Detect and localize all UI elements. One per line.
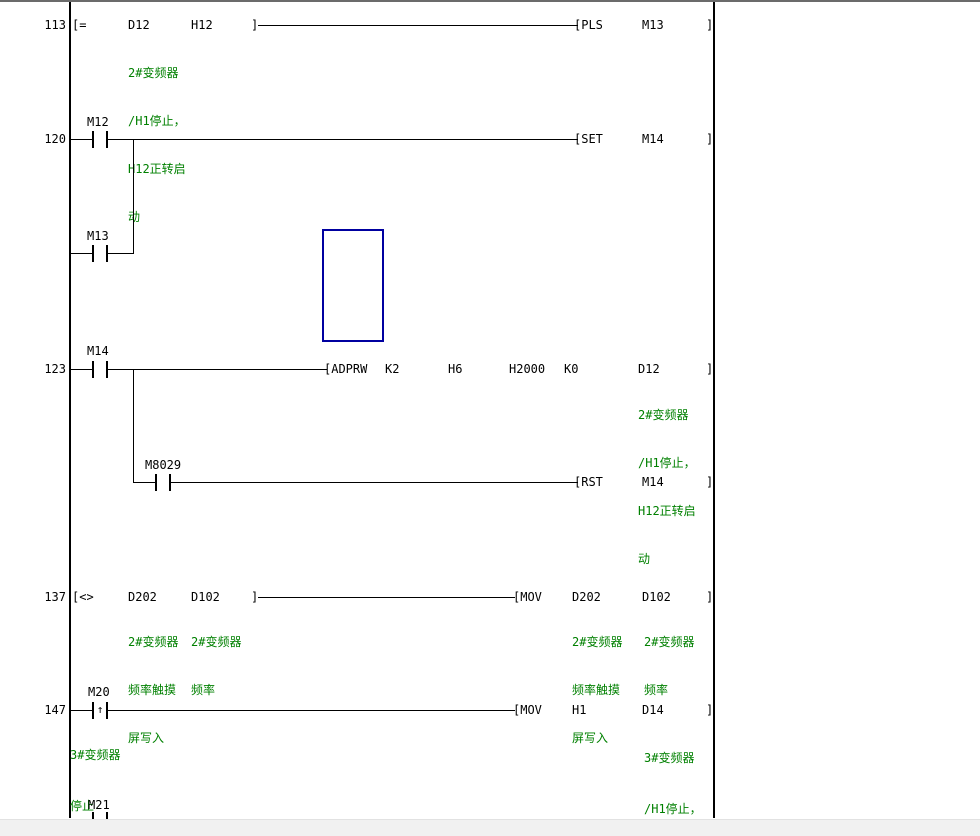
set-op[interactable]: [SET — [574, 132, 603, 146]
step-number-113: 113 — [36, 18, 66, 32]
wire-h — [70, 369, 327, 370]
compare-close-137: ] — [251, 590, 258, 604]
adprw-p1[interactable]: K2 — [385, 362, 399, 376]
contact-m14[interactable] — [92, 361, 108, 378]
set-close: ] — [706, 132, 713, 146]
contact-label-m8029: M8029 — [145, 458, 181, 472]
contact-m21-partial[interactable] — [106, 812, 108, 819]
wire-h — [258, 597, 515, 598]
contact-m13[interactable] — [92, 245, 108, 262]
contact-m8029[interactable] — [155, 474, 171, 491]
comment-line: 频率触摸 — [572, 682, 622, 698]
comment-line: H12正转启 — [128, 161, 186, 177]
comment-line: 屏写入 — [572, 730, 622, 746]
pls-close: ] — [706, 18, 713, 32]
comment-line: H12正转启 — [638, 503, 696, 519]
device-comment-d202: 2#变频器 频率触摸 屏写入 — [128, 602, 178, 778]
mov-src-147[interactable]: H1 — [572, 703, 586, 717]
rst-op[interactable]: [RST — [574, 475, 603, 489]
contact-label-m14: M14 — [87, 344, 109, 358]
comment-line: 3#变频器 — [70, 747, 120, 764]
device-comment-d12: 2#变频器 /H1停止， H12正转启 动 — [128, 33, 186, 257]
wire-h — [70, 710, 515, 711]
adprw-close: ] — [706, 362, 713, 376]
device-comment-d14: 3#变频器 /H1停止， H12正转启 动 — [644, 716, 702, 836]
device-comment-d202: 2#变频器 频率触摸 屏写入 — [572, 602, 622, 778]
branch-wire-v — [133, 139, 134, 254]
comment-line: 2#变频器 — [128, 65, 186, 81]
wire-h — [70, 139, 578, 140]
comment-line: 3#变频器 — [644, 750, 702, 767]
comment-line: 动 — [638, 551, 696, 567]
contact-label-m12: M12 — [87, 115, 109, 129]
contact-m12[interactable] — [92, 131, 108, 148]
comment-line: 频率 — [644, 682, 694, 698]
contact-label-m13: M13 — [87, 229, 109, 243]
step-number-120: 120 — [36, 132, 66, 146]
contact-label-m20: M20 — [88, 685, 110, 699]
adprw-p2[interactable]: H6 — [448, 362, 462, 376]
wire-h — [133, 482, 578, 483]
comment-line: 2#变频器 — [128, 634, 178, 650]
mov-op-147[interactable]: [MOV — [513, 703, 542, 717]
comment-line: /H1停止， — [638, 455, 696, 471]
comment-line: 屏写入 — [128, 730, 178, 746]
set-dev[interactable]: M14 — [642, 132, 664, 146]
ladder-editor-canvas: 113 [= D12 H12 ] 2#变频器 /H1停止， H12正转启 动 [… — [0, 0, 980, 836]
selection-cursor — [322, 229, 384, 342]
compare-op-113[interactable]: [= — [72, 18, 86, 32]
comment-line: 动 — [128, 209, 186, 225]
compare-s1-113[interactable]: D12 — [128, 18, 150, 32]
right-power-rail — [713, 2, 715, 818]
contact-label-m21: M21 — [88, 798, 110, 812]
adprw-p3[interactable]: H2000 — [509, 362, 545, 376]
top-border-line — [0, 0, 980, 2]
branch-wire-v — [133, 369, 134, 483]
adprw-p5[interactable]: D12 — [638, 362, 660, 376]
wire-h — [258, 25, 578, 26]
comment-line: /H1停止， — [644, 801, 702, 818]
mov-close-137: ] — [706, 590, 713, 604]
adprw-p4[interactable]: K0 — [564, 362, 578, 376]
step-number-147: 147 — [36, 703, 66, 717]
contact-m21-partial[interactable] — [92, 812, 94, 819]
comment-line: /H1停止， — [128, 113, 186, 129]
comment-line: 频率 — [191, 682, 241, 698]
mov-op-137[interactable]: [MOV — [513, 590, 542, 604]
rst-dev[interactable]: M14 — [642, 475, 664, 489]
step-number-123: 123 — [36, 362, 66, 376]
pls-dev[interactable]: M13 — [642, 18, 664, 32]
compare-s2-113[interactable]: H12 — [191, 18, 213, 32]
device-comment-m20: 3#变频器 停止 — [70, 713, 120, 836]
pls-op[interactable]: [PLS — [574, 18, 603, 32]
comment-line: 频率触摸 — [128, 682, 178, 698]
compare-close-113: ] — [251, 18, 258, 32]
comment-line: 2#变频器 — [638, 407, 696, 423]
mov-close-147: ] — [706, 703, 713, 717]
mov-dst-147[interactable]: D14 — [642, 703, 664, 717]
comment-line: 2#变频器 — [572, 634, 622, 650]
compare-op-137[interactable]: [<> — [72, 590, 94, 604]
left-power-rail — [69, 2, 71, 818]
rst-close: ] — [706, 475, 713, 489]
step-number-137: 137 — [36, 590, 66, 604]
adprw-op[interactable]: [ADPRW — [324, 362, 367, 376]
comment-line: 2#变频器 — [191, 634, 241, 650]
bottom-scrollbar-track[interactable] — [0, 819, 980, 836]
comment-line: 2#变频器 — [644, 634, 694, 650]
